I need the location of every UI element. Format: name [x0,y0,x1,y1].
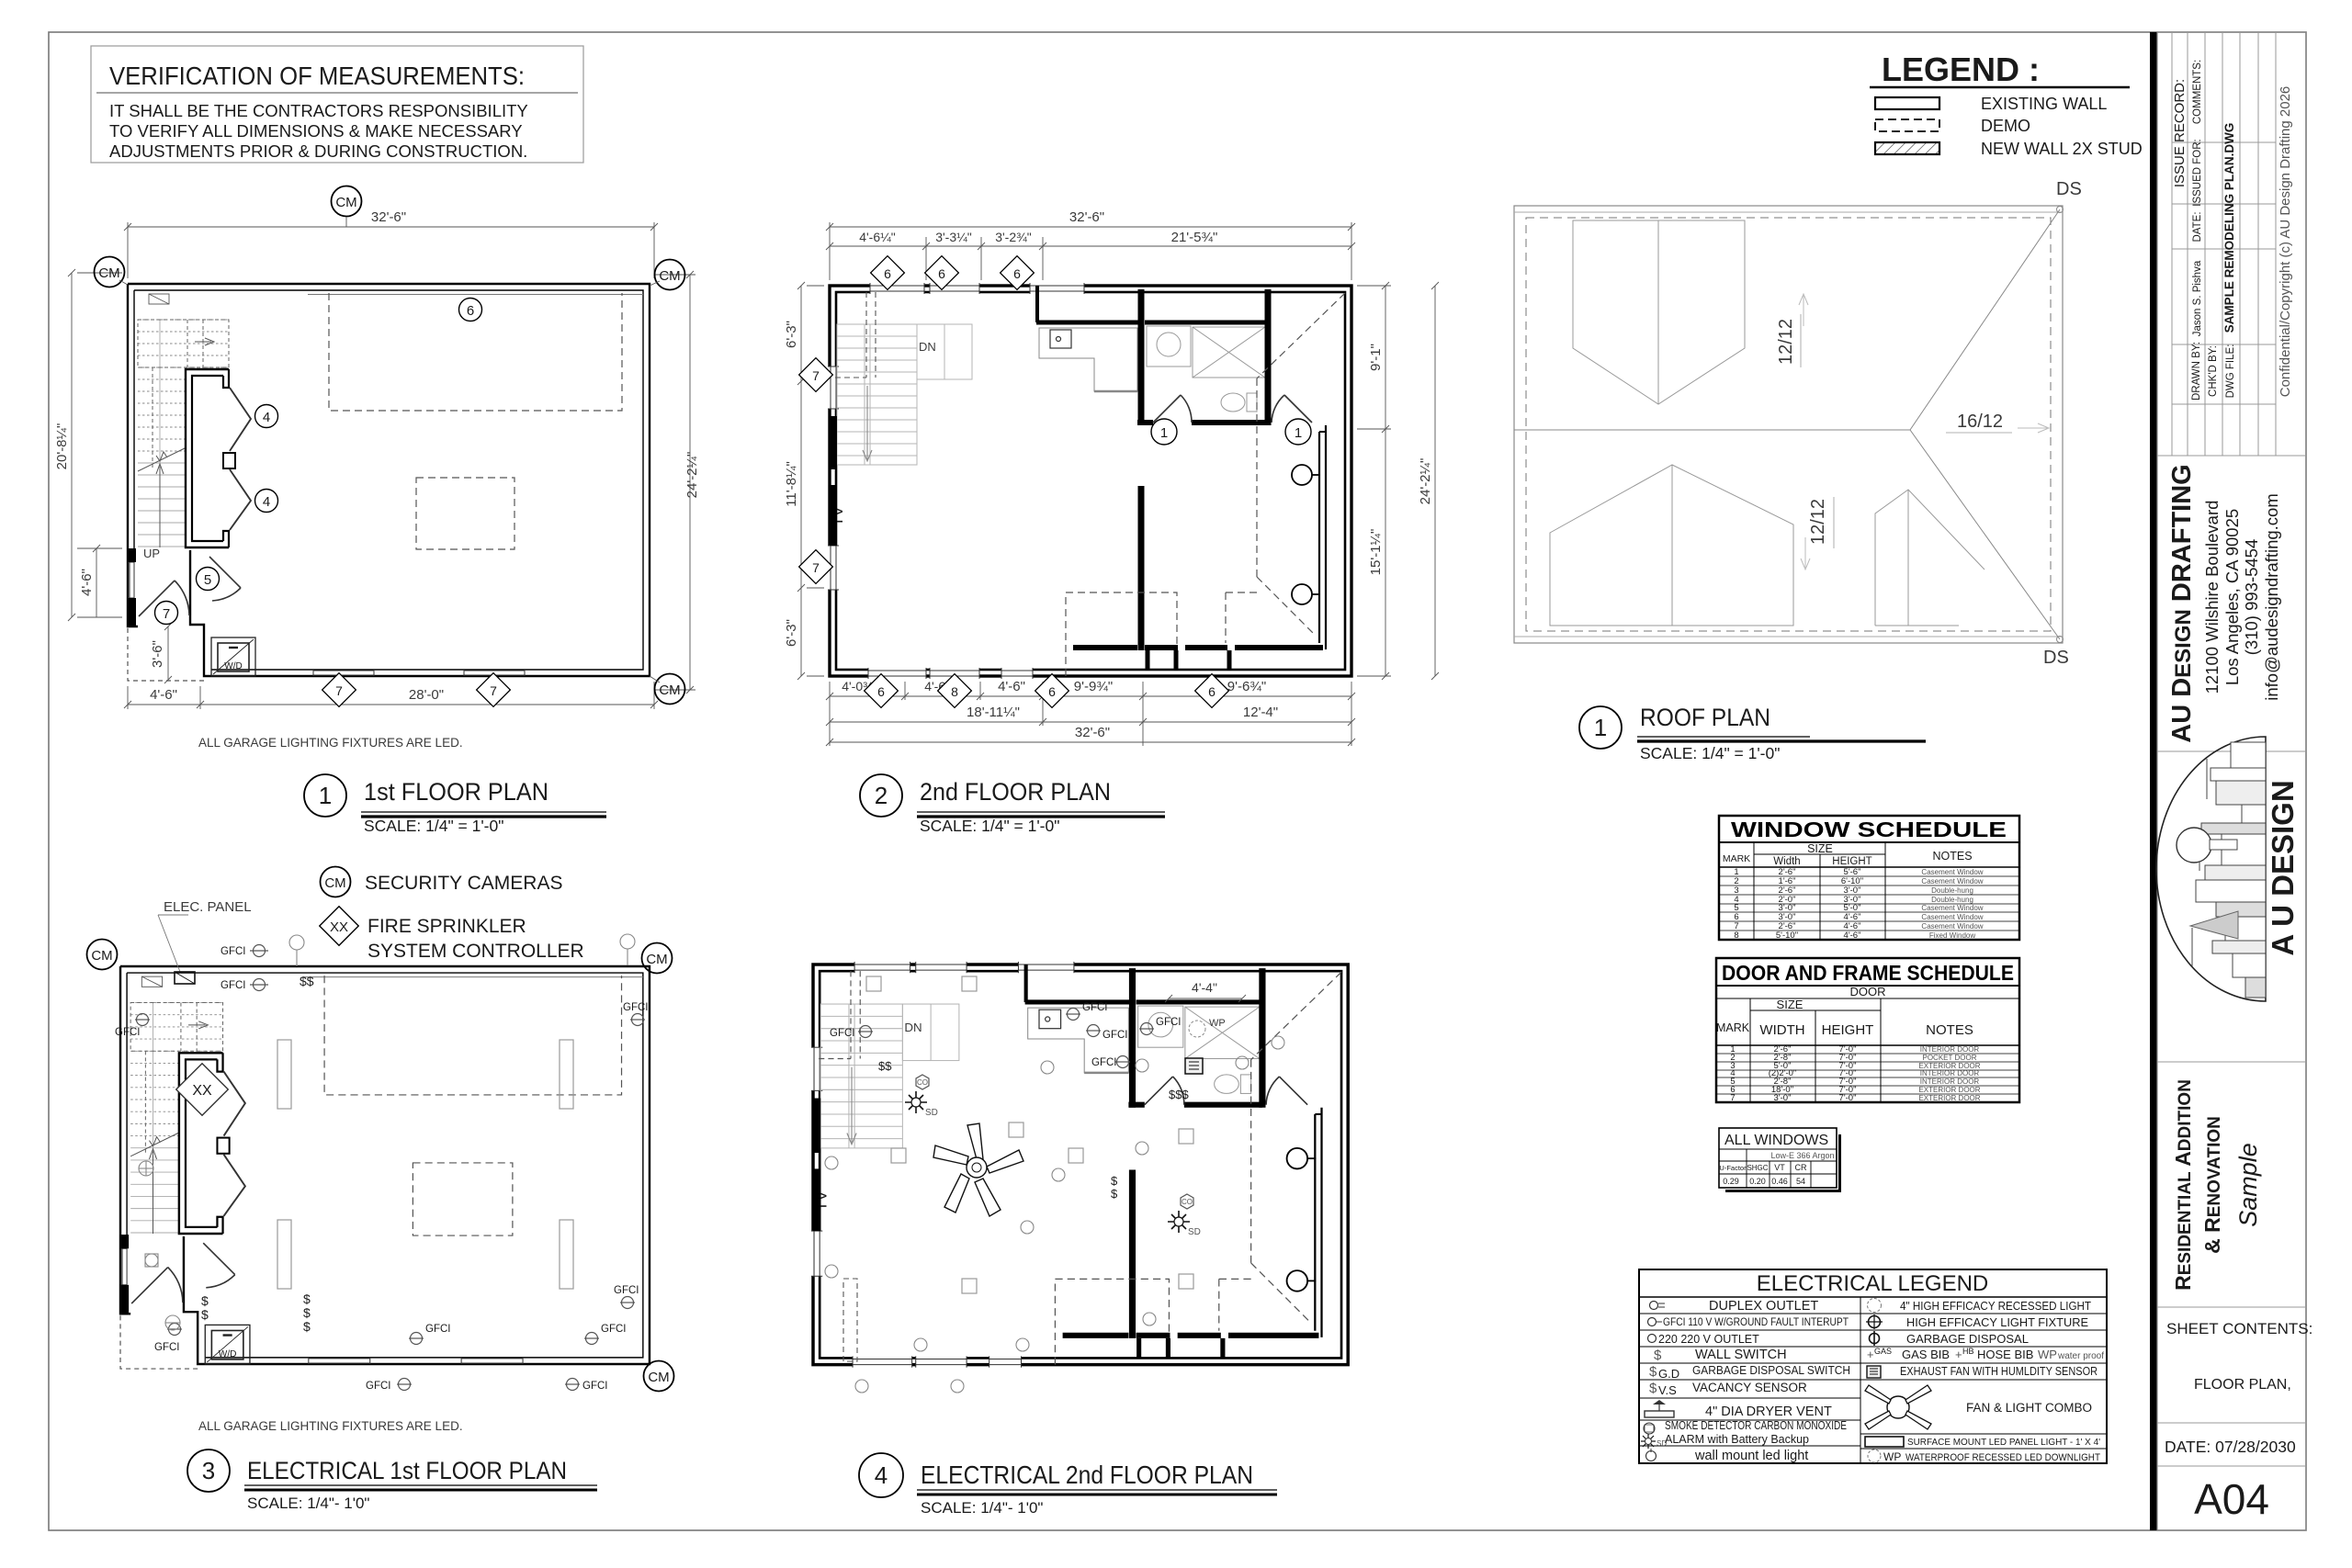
svg-text:4'-4": 4'-4" [1192,980,1217,995]
svg-text:SHGC: SHGC [1747,1164,1768,1172]
svg-text:16/12: 16/12 [1957,412,2003,432]
svg-text:SURFACE MOUNT LED PANEL LIGHT: SURFACE MOUNT LED PANEL LIGHT - 1' X 4' [1907,1437,2100,1448]
svg-text:4: 4 [263,410,270,425]
svg-text:NEW WALL 2X STUD: NEW WALL 2X STUD [1981,140,2143,158]
svg-text:CR: CR [1795,1163,1807,1172]
svg-text:21'-5¾": 21'-5¾" [1171,230,1218,245]
svg-text:4" HIGH EFFICACY RECESSED LIGH: 4" HIGH EFFICACY RECESSED LIGHT [1900,1300,2091,1313]
svg-text:DS: DS [2043,648,2069,668]
svg-text:7: 7 [335,683,343,698]
svg-text:1st FLOOR PLAN: 1st FLOOR PLAN [364,778,548,806]
svg-text:ELECTRICAL 1st FLOOR PLAN: ELECTRICAL 1st FLOOR PLAN [247,1457,567,1484]
svg-text:GFCI: GFCI [220,980,245,991]
svg-text:2nd FLOOR PLAN: 2nd FLOOR PLAN [920,778,1111,806]
svg-text:Casement Window: Casement Window [1921,868,1983,876]
svg-text:WP: WP [1883,1450,1901,1463]
svg-text:28'-0": 28'-0" [409,687,444,703]
svg-text:3'-3¼": 3'-3¼" [935,230,972,244]
svg-text:CM: CM [659,682,680,698]
svg-text:12100 Wilshire Boulevard: 12100 Wilshire Boulevard [2202,501,2222,694]
svg-text:4'-6": 4'-6" [1844,931,1861,941]
svg-text:4: 4 [875,1461,888,1489]
svg-text:GFCI 110 V W/GROUND FAULT INTE: GFCI 110 V W/GROUND FAULT INTERUPT [1663,1317,1849,1328]
svg-text:CHK'D BY:: CHK'D BY: [2208,345,2219,397]
svg-text:6'-3": 6'-3" [784,619,799,647]
svg-text:4'-6": 4'-6" [150,687,177,703]
svg-text:GARBAGE DISPOSAL SWITCH: GARBAGE DISPOSAL SWITCH [1692,1363,1850,1377]
svg-text:ADJUSTMENTS PRIOR & DURING CON: ADJUSTMENTS PRIOR & DURING CONSTRUCTION. [109,141,527,161]
svg-text:$$$: $$$ [1169,1088,1189,1101]
svg-text:DUPLEX OUTLET: DUPLEX OUTLET [1709,1299,1818,1314]
svg-text:Double-hung: Double-hung [1931,886,1973,895]
svg-text:IT SHALL BE THE CONTRACTORS RE: IT SHALL BE THE CONTRACTORS RESPONSIBILI… [109,101,528,120]
svg-text:12/12: 12/12 [1776,319,1796,365]
svg-text:24'-2¼": 24'-2¼" [1418,458,1433,505]
svg-text:7: 7 [1730,1093,1735,1103]
svg-text:WATERPROOF RECESSED LED DOWNLI: WATERPROOF RECESSED LED DOWNLIGHT [1905,1452,2100,1463]
svg-text:SHEET CONTENTS:: SHEET CONTENTS: [2166,1320,2312,1337]
svg-text:ALL WINDOWS: ALL WINDOWS [1724,1133,1828,1148]
svg-text:Low-E 366 Argon: Low-E 366 Argon [1770,1151,1834,1160]
svg-text:32'-6": 32'-6" [1069,209,1104,225]
svg-text:DOOR AND FRAME SCHEDULE: DOOR AND FRAME SCHEDULE [1722,961,2014,985]
svg-text:12/12: 12/12 [1808,499,1828,545]
svg-text:CM: CM [98,265,119,281]
svg-text:2: 2 [875,782,888,809]
svg-text:SCALE: 1/4" = 1'-0": SCALE: 1/4" = 1'-0" [920,817,1059,835]
svg-text:TO VERIFY ALL DIMENSIONS & MAK: TO VERIFY ALL DIMENSIONS & MAKE NECESSAR… [109,121,523,141]
svg-text:A04: A04 [2194,1475,2269,1523]
svg-text:6: 6 [884,266,891,281]
svg-text:CM: CM [648,1370,669,1385]
svg-text:7: 7 [812,560,820,575]
svg-text:CM: CM [91,948,112,964]
svg-text:ALL GARAGE LIGHTING FIXTURES A: ALL GARAGE LIGHTING FIXTURES ARE LED. [198,1419,463,1433]
svg-text:UP: UP [143,547,160,560]
svg-text:SCALE: 1/4"- 1'0": SCALE: 1/4"- 1'0" [921,1499,1043,1517]
svg-text:NOTES: NOTES [1926,1022,1973,1038]
svg-text:XX: XX [330,919,348,935]
svg-text:18'-11¼": 18'-11¼" [967,705,1020,720]
svg-text:220 220 V OUTLET: 220 220 V OUTLET [1658,1333,1759,1346]
svg-text:+: + [1955,1348,1962,1361]
svg-text:SD: SD [925,1108,938,1118]
svg-text:ALARM with Battery Backup: ALARM with Battery Backup [1665,1433,1809,1446]
svg-text:6: 6 [877,684,885,699]
svg-text:$: $ [303,1305,311,1320]
svg-text:1: 1 [1160,425,1168,441]
svg-text:DS: DS [2056,179,2082,199]
svg-text:0.29: 0.29 [1723,1177,1739,1186]
svg-text:SYSTEM CONTROLLER: SYSTEM CONTROLLER [367,941,584,962]
svg-text:12'-4": 12'-4" [1243,705,1278,720]
svg-text:FLOOR PLAN,: FLOOR PLAN, [2194,1377,2291,1393]
svg-text:6: 6 [1208,684,1216,699]
svg-text:CO: CO [1182,1198,1193,1206]
svg-text:INTERIOR DOOR: INTERIOR DOOR [1920,1077,1980,1086]
svg-text:HB: HB [1962,1347,1974,1356]
svg-text:POCKET DOOR: POCKET DOOR [1923,1054,1977,1062]
svg-text:info@audesigndrafting.com: info@audesigndrafting.com [2262,493,2281,701]
svg-text:Casement Window: Casement Window [1921,913,1983,921]
svg-text:Double-hung: Double-hung [1931,896,1973,904]
svg-text:ISSUED FOR:: ISSUED FOR: [2192,139,2203,206]
svg-text:6: 6 [1013,266,1021,281]
svg-text:SCALE: 1/4" = 1'-0": SCALE: 1/4" = 1'-0" [364,817,503,835]
svg-text:FIRE SPRINKLER: FIRE SPRINKLER [367,916,526,937]
svg-text:GFCI: GFCI [601,1324,626,1335]
svg-text:HOSE BIB: HOSE BIB [1977,1348,2033,1361]
svg-text:SCALE: 1/4"- 1'0": SCALE: 1/4"- 1'0" [247,1495,369,1512]
svg-text:0.20: 0.20 [1749,1177,1766,1186]
svg-text:5: 5 [204,572,211,588]
svg-text:COMMENTS:: COMMENTS: [2192,60,2203,124]
svg-text:CM: CM [659,268,680,284]
svg-text:GARBAGE DISPOSAL: GARBAGE DISPOSAL [1906,1332,2029,1346]
svg-text:4'-6": 4'-6" [998,679,1025,694]
svg-text:7'-0": 7'-0" [1839,1093,1857,1103]
svg-text:GFCI: GFCI [1156,1017,1181,1028]
svg-text:$: $ [303,1319,311,1334]
svg-text:GFCI: GFCI [623,1002,648,1013]
svg-text:GFCI: GFCI [1102,1030,1127,1041]
svg-text:+: + [1867,1348,1874,1361]
svg-text:9'-9¾": 9'-9¾" [1074,679,1113,694]
svg-text:INTERIOR DOOR: INTERIOR DOOR [1920,1045,1980,1054]
svg-text:W/D: W/D [224,661,242,671]
svg-text:Confidential/Copyright (c) AU: Confidential/Copyright (c) AU Design Dra… [2278,86,2293,398]
svg-text:DRAWN BY:: DRAWN BY: [2191,342,2202,400]
svg-text:NOTES: NOTES [1932,850,1972,863]
svg-text:7: 7 [163,606,170,622]
svg-text:VERIFICATION OF MEASUREMENTS:: VERIFICATION OF MEASUREMENTS: [109,62,525,90]
svg-text:DOOR: DOOR [1850,985,1886,998]
svg-text:GAS BIB: GAS BIB [1902,1348,1950,1361]
svg-text:SAMPLE REMODELING PLAN.DWG: SAMPLE REMODELING PLAN.DWG [2222,123,2236,333]
svg-text:V.S: V.S [1658,1383,1677,1397]
svg-text:5'-10": 5'-10" [1776,931,1798,941]
svg-text:DEMO: DEMO [1981,117,2030,135]
svg-text:54: 54 [1796,1177,1805,1186]
svg-text:wall mount led light: wall mount led light [1694,1449,1808,1463]
svg-text:Sample: Sample [2234,1143,2262,1227]
svg-text:$: $ [1654,1348,1662,1363]
svg-text:3: 3 [202,1457,215,1484]
svg-text:SMOKE DETECTOR CARBON MONOXIDE: SMOKE DETECTOR CARBON MONOXIDE [1665,1419,1847,1432]
svg-text:6: 6 [467,303,474,319]
svg-text:(310) 993-5454: (310) 993-5454 [2242,539,2261,656]
svg-text:CM: CM [324,875,345,891]
svg-text:ELECTRICAL LEGEND: ELECTRICAL LEGEND [1757,1271,1989,1296]
svg-text:Los Angeles, CA 90025: Los Angeles, CA 90025 [2222,509,2242,685]
svg-text:4'-6": 4'-6" [79,569,95,596]
svg-text:G.D: G.D [1658,1367,1679,1381]
svg-text:6: 6 [938,266,945,281]
svg-text:GFCI: GFCI [154,1342,179,1353]
svg-text:GFCI: GFCI [366,1381,390,1392]
svg-text:SCALE: 1/4" = 1'-0": SCALE: 1/4" = 1'-0" [1640,744,1780,762]
svg-text:GFCI: GFCI [582,1381,607,1392]
svg-text:SIZE: SIZE [1777,998,1804,1011]
svg-text:$: $ [1649,1364,1657,1380]
svg-text:32'-6": 32'-6" [1075,725,1110,740]
svg-text:GFCI: GFCI [614,1285,639,1296]
svg-text:VACANCY SENSOR: VACANCY SENSOR [1692,1381,1807,1394]
svg-text:EXTERIOR DOOR: EXTERIOR DOOR [1918,1086,1980,1094]
svg-text:4" DIA DRYER VENT: 4" DIA DRYER VENT [1705,1404,1832,1419]
svg-text:$$: $$ [300,974,314,988]
svg-text:$: $ [201,1307,209,1322]
svg-text:Width: Width [1773,856,1800,867]
svg-text:AU DESIGN DRAFTING: AU DESIGN DRAFTING [2167,464,2197,742]
svg-text:GAS: GAS [1874,1347,1892,1356]
svg-text:DATE:: DATE: [2192,211,2203,242]
svg-text:ELEC. PANEL: ELEC. PANEL [164,899,252,915]
svg-text:Jason S. Pishva: Jason S. Pishva [2192,260,2203,336]
svg-text:WIDTH: WIDTH [1759,1022,1804,1038]
svg-text:Casement Window: Casement Window [1921,877,1983,886]
svg-text:WP: WP [2038,1348,2057,1361]
svg-text:15'-1¼": 15'-1¼" [1368,529,1384,576]
svg-text:GFCI: GFCI [115,1027,140,1038]
svg-text:ELECTRICAL 2nd FLOOR PLAN: ELECTRICAL 2nd FLOOR PLAN [921,1461,1253,1489]
svg-text:SD: SD [1188,1227,1201,1237]
svg-text:CO: CO [917,1078,928,1087]
svg-text:32'-6": 32'-6" [371,209,406,225]
svg-text:MARK: MARK [1716,1021,1750,1034]
svg-text:$$: $$ [878,1059,892,1073]
svg-text:DN: DN [919,340,936,354]
svg-text:24'-2¼": 24'-2¼" [684,452,700,499]
svg-text:Fixed Window: Fixed Window [1929,931,1975,940]
svg-text:20'-8¼": 20'-8¼" [54,423,70,470]
svg-text:3'-6": 3'-6" [150,640,165,668]
svg-text:Casement Window: Casement Window [1921,904,1983,912]
svg-text:A U DESIGN: A U DESIGN [2266,780,2300,955]
svg-text:CM: CM [646,952,667,967]
svg-text:7: 7 [812,368,820,383]
svg-text:9'-1": 9'-1" [1368,344,1384,371]
svg-text:$: $ [1111,1174,1118,1188]
svg-text:INTERIOR DOOR: INTERIOR DOOR [1920,1069,1980,1077]
svg-text:VT: VT [1774,1163,1785,1172]
svg-text:MARK: MARK [1723,853,1750,864]
svg-text:GFCI: GFCI [1082,1002,1107,1013]
svg-text:FAN & LIGHT COMBO: FAN & LIGHT COMBO [1966,1401,2092,1415]
svg-text:7: 7 [490,683,497,698]
svg-text:GFCI: GFCI [425,1324,450,1335]
svg-text:DWG FILE:: DWG FILE: [2225,344,2236,399]
svg-text:EXISTING WALL: EXISTING WALL [1981,95,2107,113]
svg-text:6: 6 [1048,684,1056,699]
svg-text:water proof: water proof [2057,1351,2104,1361]
svg-text:Casement Window: Casement Window [1921,922,1983,931]
svg-text:DATE: 07/28/2030: DATE: 07/28/2030 [2165,1438,2296,1456]
svg-text:0.46: 0.46 [1771,1177,1788,1186]
svg-text:1: 1 [1295,425,1302,441]
svg-text:3'-0": 3'-0" [1774,1093,1792,1103]
svg-text:$: $ [1111,1187,1118,1201]
svg-text:SECURITY CAMERAS: SECURITY CAMERAS [365,873,563,894]
svg-text:CM: CM [335,195,356,210]
svg-text:EXHAUST FAN WITH HUMLDITY SENS: EXHAUST FAN WITH HUMLDITY SENSOR [1900,1365,2098,1378]
svg-text:GFCI: GFCI [830,1028,854,1039]
svg-text:ALL GARAGE LIGHTING FIXTURES A: ALL GARAGE LIGHTING FIXTURES ARE LED. [198,736,463,750]
svg-text:HIGH EFFICACY LIGHT FIXTURE: HIGH EFFICACY LIGHT FIXTURE [1906,1315,2088,1329]
svg-text:HEIGHT: HEIGHT [1832,856,1871,867]
svg-text:GFCI: GFCI [1091,1057,1116,1068]
svg-text:1: 1 [1594,714,1607,741]
svg-text:$: $ [1649,1381,1657,1396]
svg-text:WALL SWITCH: WALL SWITCH [1695,1348,1787,1362]
svg-text:8: 8 [951,684,958,699]
svg-text:3'-2¾": 3'-2¾" [995,230,1032,244]
svg-text:8: 8 [1734,931,1738,941]
svg-text:4: 4 [263,494,270,510]
svg-text:ROOF PLAN: ROOF PLAN [1640,704,1770,731]
svg-text:4'-6¼": 4'-6¼" [859,230,896,244]
svg-text:SIZE: SIZE [1807,842,1833,855]
svg-text:6'-3": 6'-3" [784,321,799,348]
svg-text:11'-8¼": 11'-8¼" [784,461,799,507]
svg-text:$: $ [201,1293,209,1308]
svg-text:ISSUE RECORD:: ISSUE RECORD: [2172,79,2188,187]
svg-text:LEGEND :: LEGEND : [1882,51,2040,88]
svg-text:GFCI: GFCI [220,946,245,957]
svg-text:EXTERIOR DOOR: EXTERIOR DOOR [1918,1094,1980,1102]
svg-text:U-Factor: U-Factor [1719,1164,1747,1172]
svg-text:WP: WP [1209,1018,1226,1029]
svg-text:$: $ [303,1292,311,1306]
svg-text:XX: XX [192,1083,212,1099]
svg-text:9'-6¾": 9'-6¾" [1227,679,1266,694]
svg-text:WINDOW SCHEDULE: WINDOW SCHEDULE [1731,818,2007,841]
svg-text:HEIGHT: HEIGHT [1822,1022,1874,1038]
svg-text:1: 1 [319,782,332,809]
